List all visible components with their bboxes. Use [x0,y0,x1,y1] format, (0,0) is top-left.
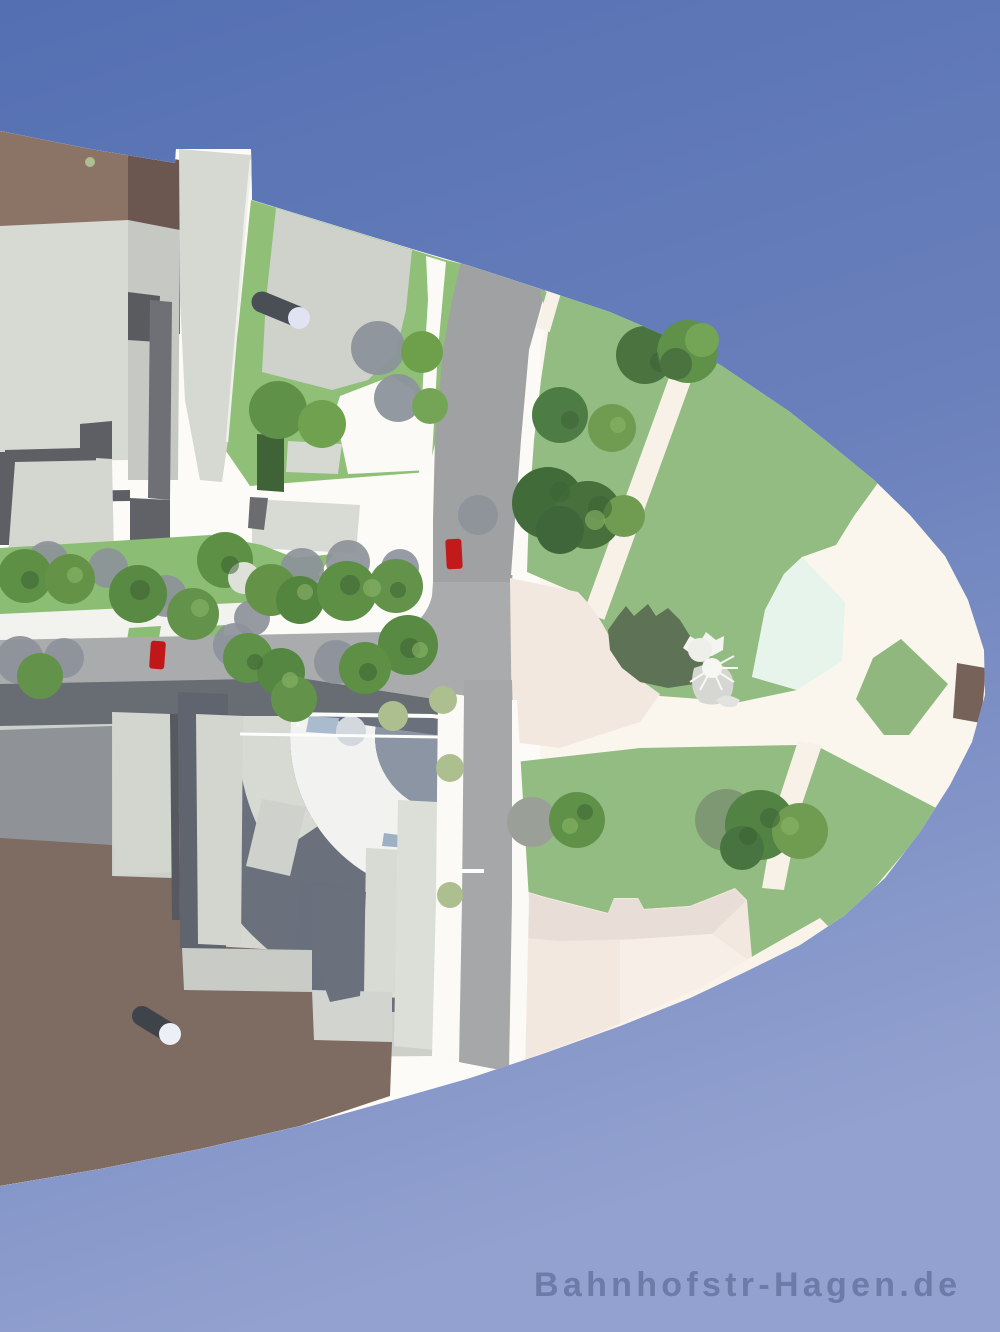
svg-text:Bahnhofstr-Hagen.de: Bahnhofstr-Hagen.de [534,1266,961,1304]
